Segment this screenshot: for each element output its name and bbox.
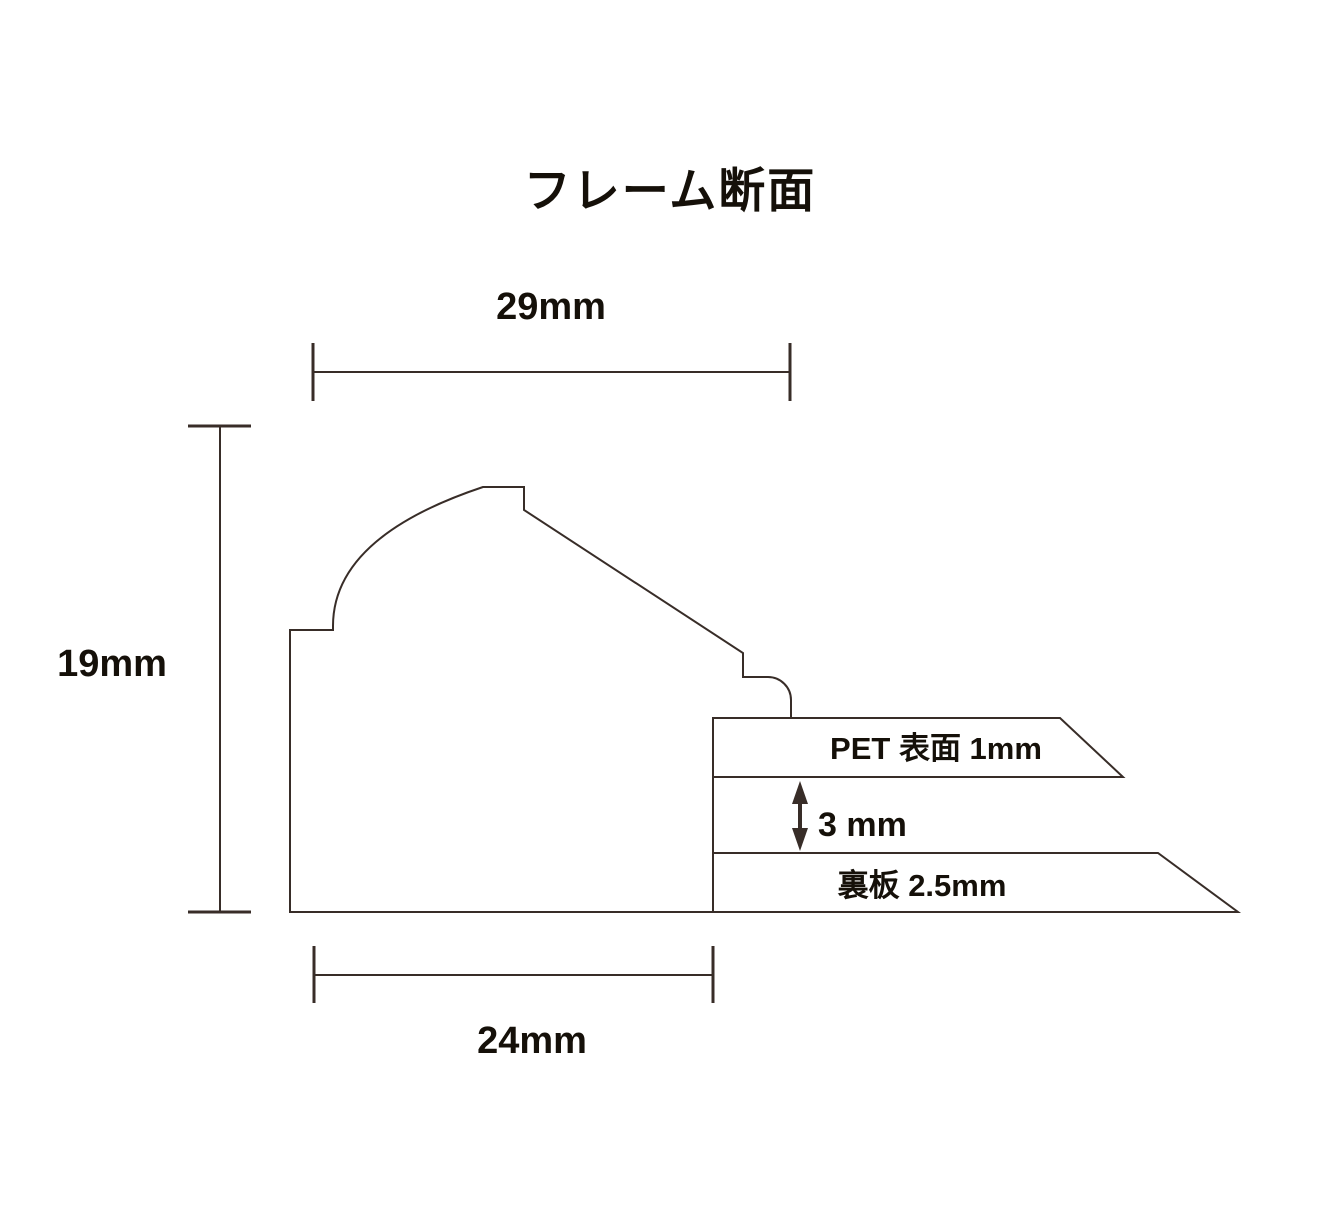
dimension-left-label: 19mm: [57, 643, 167, 685]
gap-label: 3 mm: [818, 806, 907, 844]
dimension-top-width: 29mm: [313, 286, 790, 401]
diagram-canvas: フレーム断面 29mm 19mm PET 表面 1mm 3 mm: [0, 0, 1329, 1218]
pet-sheet-label: PET 表面 1mm: [830, 731, 1042, 766]
dimension-top-label: 29mm: [496, 286, 606, 328]
back-board-label: 裏板 2.5mm: [838, 868, 1007, 903]
dimension-bottom-label: 24mm: [477, 1020, 587, 1062]
dimension-left-height: 19mm: [57, 426, 251, 912]
frame-profile-outline: [290, 487, 791, 912]
gap-arrow-down-head: [792, 828, 808, 851]
gap-arrow-up-head: [792, 781, 808, 804]
frame-cross-section-diagram: フレーム断面 29mm 19mm PET 表面 1mm 3 mm: [0, 0, 1329, 1218]
dimension-bottom-width: 24mm: [314, 946, 713, 1062]
diagram-title: フレーム断面: [524, 164, 817, 217]
gap-dimension: 3 mm: [792, 781, 907, 851]
